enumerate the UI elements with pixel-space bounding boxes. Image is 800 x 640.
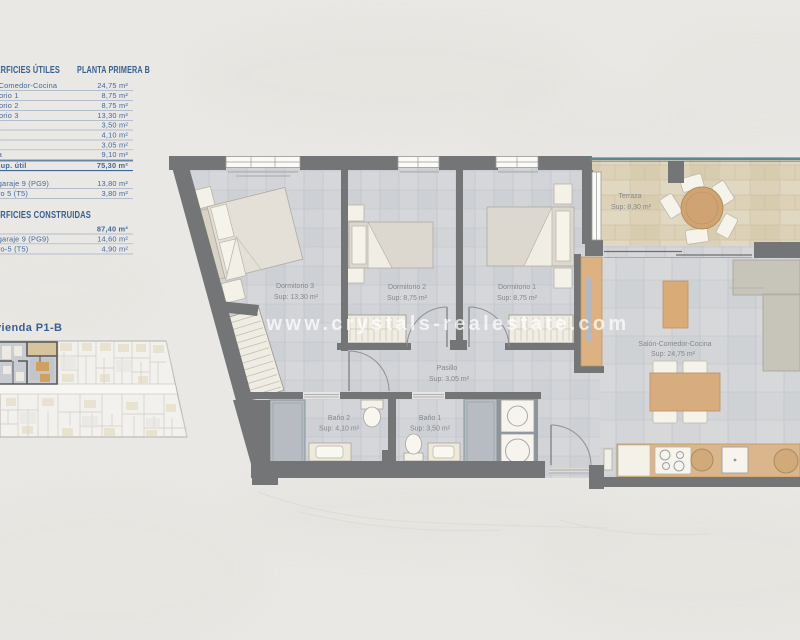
svg-text:Sup: 13,30 m²: Sup: 13,30 m²: [274, 294, 319, 301]
svg-text:3,50 m²: 3,50 m²: [102, 121, 129, 130]
svg-text:Plaza garaje 9 (PG9): Plaza garaje 9 (PG9): [0, 234, 49, 243]
svg-text:Baño 1: Baño 1: [0, 121, 1, 130]
svg-text:Dormitorio 3: Dormitorio 3: [0, 111, 19, 120]
svg-text:75,30 m²: 75,30 m²: [97, 161, 129, 170]
svg-text:Total sup. útil: Total sup. útil: [0, 161, 27, 170]
svg-text:3,05 m²: 3,05 m²: [102, 140, 129, 149]
svg-text:24,75 m²: 24,75 m²: [97, 81, 128, 90]
svg-text:Sup: 8,30 m²: Sup: 8,30 m²: [611, 204, 652, 211]
svg-text:13,30 m²: 13,30 m²: [97, 111, 128, 120]
svg-text:8,75 m²: 8,75 m²: [102, 91, 129, 100]
svg-text:Dormitorio 3: Dormitorio 3: [276, 283, 314, 290]
svg-text:www.crystals-realestate.com: www.crystals-realestate.com: [266, 313, 630, 335]
svg-text:SUPERFICIES ÚTILES: SUPERFICIES ÚTILES: [0, 63, 60, 76]
svg-text:Pasillo: Pasillo: [437, 365, 458, 372]
svg-text:8,75 m²: 8,75 m²: [102, 101, 129, 110]
svg-text:9,10 m²: 9,10 m²: [102, 150, 129, 159]
svg-text:Sup: 4,10 m²: Sup: 4,10 m²: [319, 426, 360, 433]
svg-text:Dormitorio 1: Dormitorio 1: [498, 284, 536, 291]
svg-text:Salón-Comedor-Cocina: Salón-Comedor-Cocina: [638, 341, 711, 348]
svg-text:Sup: 3,50 m²: Sup: 3,50 m²: [410, 426, 451, 433]
svg-text:3,80 m²: 3,80 m²: [102, 189, 129, 198]
svg-text:Trastero-5 (T5): Trastero-5 (T5): [0, 245, 28, 254]
svg-text:SUPERFICIES CONSTRUIDAS: SUPERFICIES CONSTRUIDAS: [0, 210, 91, 221]
svg-text:4,10 m²: 4,10 m²: [102, 131, 129, 140]
svg-text:PLANTA PRIMERA B: PLANTA PRIMERA B: [77, 65, 150, 76]
svg-text:Baño 2: Baño 2: [328, 415, 350, 422]
svg-text:Plaza garaje 9 (PG9): Plaza garaje 9 (PG9): [0, 179, 49, 188]
svg-text:Dormitorio 1: Dormitorio 1: [0, 91, 19, 100]
svg-text:Baño 1: Baño 1: [419, 415, 441, 422]
svg-text:Sup: 8,75 m²: Sup: 8,75 m²: [497, 295, 538, 302]
svg-text:Sup: 3,05 m²: Sup: 3,05 m²: [429, 376, 470, 383]
svg-text:87,40 m²: 87,40 m²: [97, 225, 129, 234]
svg-text:Dormitorio 2: Dormitorio 2: [0, 101, 19, 110]
svg-text:Sup: 8,75 m²: Sup: 8,75 m²: [387, 295, 428, 302]
svg-text:Salón-Comedor-Cocina: Salón-Comedor-Cocina: [0, 81, 58, 90]
svg-text:Dormitorio 2: Dormitorio 2: [388, 284, 426, 291]
svg-text:Sup: 24,75 m²: Sup: 24,75 m²: [651, 351, 696, 358]
svg-text:4,90 m²: 4,90 m²: [102, 245, 129, 254]
svg-text:13,80 m²: 13,80 m²: [97, 179, 128, 188]
svg-text:Vivienda P1-B: Vivienda P1-B: [0, 322, 62, 334]
svg-text:Trastero 5 (T5): Trastero 5 (T5): [0, 189, 28, 198]
svg-text:Terraza: Terraza: [618, 193, 641, 200]
svg-text:14,60 m²: 14,60 m²: [97, 234, 128, 243]
svg-text:Baño 2: Baño 2: [0, 131, 1, 140]
